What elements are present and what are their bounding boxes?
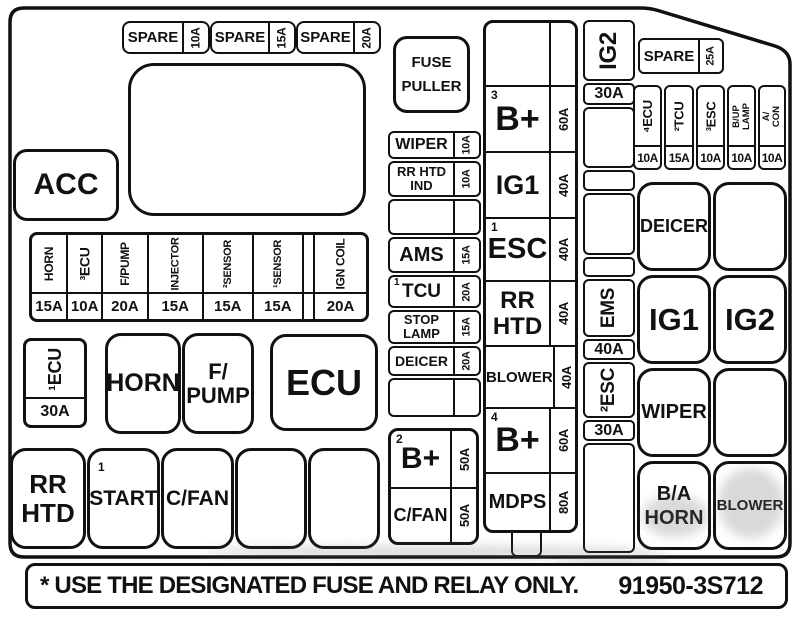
fuse-sup: 1 (491, 221, 498, 233)
fuse-ig2-label: IG2 (583, 20, 635, 81)
fuse-label: IG1 (496, 170, 540, 201)
relay-label: IG1 (649, 302, 699, 338)
fuse-blank (302, 235, 313, 319)
relay-label: F/ (186, 360, 250, 384)
relay-horn: HORN (105, 333, 181, 434)
fuse-label: STOP LAMP (390, 312, 453, 342)
fuse-amp: 10A (760, 145, 784, 168)
fuse-bup-lamp-10a: B/UP LAMP 10A (727, 85, 756, 170)
fuse-amp: 10A (635, 145, 660, 168)
fuse-amp: 60A (549, 87, 575, 151)
fuse-blank (583, 193, 635, 255)
relay-acc: ACC (13, 149, 119, 221)
relay-blank (713, 368, 787, 457)
fuse-tcu2-15a: ²TCU 15A (664, 85, 694, 170)
fuse-label: SPARE (212, 23, 268, 52)
fuse-label: ²ESC (598, 368, 620, 412)
fuse-sup: 3 (491, 89, 498, 101)
fuse-amp: 40A (553, 347, 578, 407)
fuse-label: B+ (495, 421, 539, 460)
fuse-amp: 30A (26, 397, 84, 425)
fuse-rr-htd-40a: RR HTD 40A (486, 280, 575, 345)
relay-blank (308, 448, 380, 549)
fuse-blank (388, 199, 481, 235)
fuse-box-diagram: SPARE 10A SPARE 15A SPARE 20A FUSE PULLE… (0, 0, 800, 619)
fuse-bplus2-cfan: 2 B+ 50A C/FAN 50A (388, 428, 479, 545)
relay-cfan: C/FAN (161, 448, 234, 549)
relay-label: WIPER (641, 401, 707, 424)
relay-block-empty (128, 63, 366, 216)
fuse-label: EMS (598, 288, 620, 328)
fuse-label: B+ (495, 100, 539, 139)
fuse-label: HORN (42, 246, 56, 280)
fuse-amp (549, 23, 575, 85)
fuse-blower-40a: BLOWER 40A (486, 345, 575, 407)
fuse-amp: 80A (549, 474, 575, 530)
fuse-esc2-label: ²ESC (583, 362, 635, 418)
relay-fpump: F/ PUMP (182, 333, 254, 434)
fuse-amp: 50A (450, 489, 476, 542)
relay-label: DEICER (640, 216, 708, 237)
fuse-ig2-amp: 30A (583, 83, 635, 105)
fuse-label: AMS (390, 239, 453, 271)
fuse-sup: 2 (396, 433, 403, 445)
fuse-amp: 30A (594, 85, 623, 103)
fuse-ign-coil: IGN COIL 20A (313, 235, 366, 319)
fuse-blank (583, 107, 635, 168)
fuse-cfan-50a: C/FAN 50A (391, 487, 476, 542)
fuse-mdps-80a: MDPS 80A (486, 472, 575, 530)
fuse-spare-15a: SPARE 15A (210, 21, 296, 54)
fuse-label: MDPS (489, 491, 547, 514)
main-fuse-column: 3 B+ 60A IG1 40A 1 ESC 40A RR HTD 40A (483, 20, 578, 533)
relay-wiper: WIPER (637, 368, 711, 457)
fuse-amp: 60A (549, 409, 575, 472)
fuse-label: INJECTOR (169, 237, 181, 290)
fuse-puller-label: FUSE (402, 51, 462, 75)
fuse-label: SPARE (640, 40, 698, 72)
fuse-amp: 15A (204, 292, 252, 319)
relay-rr-htd: RR HTD (10, 448, 86, 549)
relay-deicer: DEICER (637, 182, 711, 271)
fuse-puller: FUSE PULLER (393, 36, 470, 113)
relay-label: BLOWER (717, 497, 784, 514)
fuse-spare-25a: SPARE 25A (638, 38, 724, 74)
fuse-amp (453, 201, 479, 233)
fuse-blank (583, 170, 635, 191)
fuse-spare-20a: SPARE 20A (296, 21, 381, 54)
fuse-amp: 40A (594, 341, 623, 359)
fuse-amp: 15A (254, 292, 302, 319)
fuse-amp: 10A (698, 145, 723, 168)
connector-tab (511, 531, 542, 557)
fuse-amp: 25A (698, 40, 722, 72)
fuse-amp: 40A (549, 219, 575, 280)
fuse-amp: 30A (594, 422, 623, 440)
relay-label: START (89, 487, 157, 511)
fuse-label: B+ (401, 442, 440, 476)
fuse-blank (583, 257, 635, 277)
fuse-label: WIPER (390, 133, 453, 157)
fuse-ecu3: ³ECU 10A (66, 235, 101, 319)
fuse-amp: 10A (453, 163, 479, 195)
fuse-label: ¹ECU (45, 348, 66, 391)
mid-fuse-row: HORN 15A ³ECU 10A F/PUMP 20A INJECTOR 15… (29, 232, 369, 322)
relay-label: PUMP (186, 384, 250, 408)
fuse-amp: 50A (450, 431, 476, 487)
fuse-amp: 40A (549, 153, 575, 217)
fuse-amp: 15A (453, 239, 479, 271)
fuse-amp: 10A (68, 292, 101, 319)
fuse-amp: 20A (103, 292, 147, 319)
fuse-label: IG2 (595, 32, 623, 70)
fuse-blank (583, 443, 635, 553)
fuse-bplus4-60a: 4 B+ 60A (486, 407, 575, 472)
relay-blank (235, 448, 307, 549)
fuse-tcu1: 1 TCU 20A (388, 275, 481, 308)
relay-ba-horn: B/A HORN (637, 461, 711, 550)
footer-label: * USE THE DESIGNATED FUSE AND RELAY ONLY… (25, 563, 788, 609)
fuse-sup: 4 (491, 411, 498, 423)
fuse-label: RR HTD IND (390, 163, 453, 195)
fuse-amp: 15A (268, 23, 294, 52)
fuse-label: 1 TCU (390, 277, 453, 306)
fuse-horn: HORN 15A (32, 235, 66, 319)
fuse-label: A/ CON (763, 105, 782, 126)
fuse-label: C/FAN (394, 505, 448, 526)
fuse-spare-10a: SPARE 10A (122, 21, 210, 54)
usage-note: * USE THE DESIGNATED FUSE AND RELAY ONLY… (40, 572, 578, 600)
relay-ig1: IG1 (637, 275, 711, 364)
fuse-ems-amp: 40A (583, 339, 635, 360)
fuse-amp: 10A (729, 145, 754, 168)
relay-ig2: IG2 (713, 275, 787, 364)
relay-blank (713, 182, 787, 271)
fuse-injector: INJECTOR 15A (147, 235, 202, 319)
relay-label: C/FAN (166, 487, 229, 511)
fuse-amp: 20A (453, 277, 479, 306)
fuse-sensor2: ²SENSOR 15A (202, 235, 252, 319)
fuse-amp: 15A (149, 292, 202, 319)
fuse-ams: AMS 15A (388, 237, 481, 273)
fuse-stop-lamp: STOP LAMP 15A (388, 310, 481, 344)
fuse-esc2-amp: 30A (583, 420, 635, 441)
fuse-label: ESC (488, 233, 548, 266)
fuse-label: ¹SENSOR (272, 239, 284, 287)
fuse-amp: 15A (666, 145, 692, 168)
fuse-label: DEICER (390, 348, 453, 374)
fuse-amp (453, 380, 479, 415)
fuse-rr-htd-ind: RR HTD IND 10A (388, 161, 481, 197)
relay-sup: 1 (98, 461, 105, 473)
relay-label: B/A (645, 482, 704, 506)
fuse-bplus3-60a: 3 B+ 60A (486, 85, 575, 151)
fuse-label: ²TCU (672, 101, 687, 131)
relay-label: HORN (106, 369, 180, 398)
fuse-puller-label: PULLER (402, 75, 462, 99)
relay-ecu: ECU (270, 334, 378, 431)
fuse-label: ²SENSOR (222, 239, 234, 287)
fuse-ems-label: EMS (583, 279, 635, 337)
fuse-label: B/UP LAMP (732, 103, 751, 130)
fuse-ecu4-10a: ⁴ECU 10A (633, 85, 662, 170)
fuse-bplus2: 2 B+ 50A (391, 431, 476, 487)
fuse-amp: 40A (549, 282, 575, 345)
fuse-amp (304, 292, 313, 319)
fuse-label: ⁴ECU (640, 100, 655, 133)
fuse-label (390, 380, 453, 415)
fuse-blank (388, 378, 481, 417)
fuse-label (390, 201, 453, 233)
relay-label: ACC (34, 168, 99, 202)
fuse-amp: 15A (32, 292, 66, 319)
relay-label: HTD (21, 499, 74, 527)
fuse-label: SPARE (124, 23, 182, 52)
fuse-label: BLOWER (486, 369, 553, 386)
relay-label: RR (21, 470, 74, 498)
fuse-deicer: DEICER 20A (388, 346, 481, 376)
fuse-sensor1: ¹SENSOR 15A (252, 235, 302, 319)
fuse-esc3-10a: ³ESC 10A (696, 85, 725, 170)
fuse-wiper: WIPER 10A (388, 131, 481, 159)
fuse-amp: 20A (315, 292, 366, 319)
fuse-amp: 20A (353, 23, 379, 52)
fuse-ig1-40a: IG1 40A (486, 151, 575, 217)
fuse-esc1-40a: 1 ESC 40A (486, 217, 575, 280)
fuse-label: IGN COIL (334, 238, 348, 289)
relay-label: IG2 (725, 302, 775, 338)
fuse-label: ³ECU (77, 247, 93, 280)
fuse-amp: 10A (453, 133, 479, 157)
fuse-label: F/PUMP (118, 242, 132, 286)
fuse-blank (486, 23, 575, 85)
fuse-fpump: F/PUMP 20A (101, 235, 147, 319)
fuse-ecu1-30a: ¹ECU 30A (23, 338, 87, 428)
fuse-label: RR HTD (486, 282, 549, 345)
fuse-label: SPARE (298, 23, 353, 52)
relay-start: 1 START (87, 448, 160, 549)
part-number: 91950-3S712 (618, 572, 763, 601)
fuse-amp: 15A (453, 312, 479, 342)
relay-blower: BLOWER (713, 461, 787, 550)
relay-label: ECU (286, 362, 362, 404)
fuse-amp: 10A (182, 23, 208, 52)
fuse-acon-10a: A/ CON 10A (758, 85, 786, 170)
relay-label: HORN (645, 506, 704, 530)
fuse-amp: 20A (453, 348, 479, 374)
fuse-label: ³ESC (703, 101, 718, 131)
